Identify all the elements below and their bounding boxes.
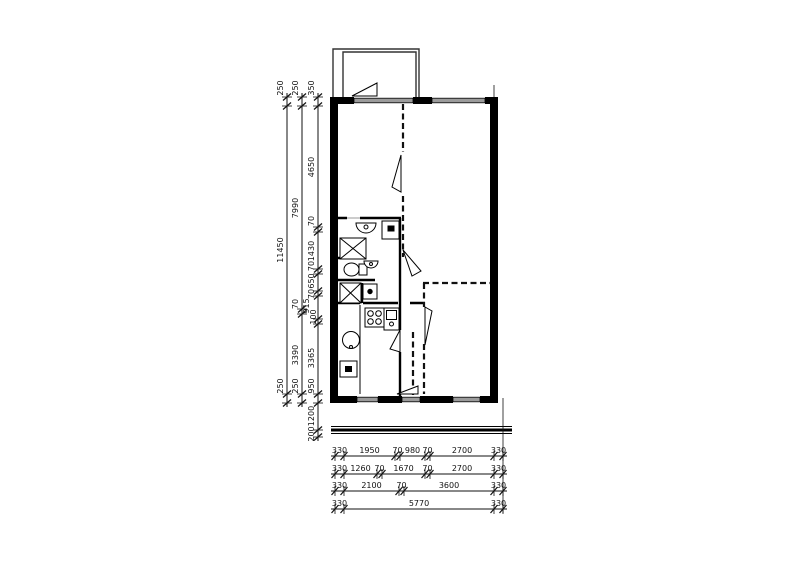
dim-label: 5770 [409,499,429,508]
balcony-door [352,83,377,96]
dim-label: 70 [291,299,300,309]
appliance-dot [346,367,352,372]
windows [354,98,485,402]
dim-label: 1950 [359,446,379,455]
dim-label: 70 [307,216,316,226]
dim-label: 250 [291,378,300,393]
dim-label: 70 [307,289,316,299]
dim-label: 330 [491,481,506,490]
bathroom-fixtures [340,221,399,303]
dim-label: 3390 [291,345,300,365]
window-bottom-3 [453,397,480,402]
stove-burner-2 [376,311,382,317]
dim-label: 200 [307,426,316,441]
stove-icon [365,308,384,327]
dimension-annotations: 2501145025025079907033902503504650701430… [276,80,507,514]
kitchen-sink-tap [390,322,394,326]
window-top-1 [354,98,413,103]
dim-label: 980 [405,446,420,455]
dim-label: 70 [374,464,384,473]
dim-label: 3600 [439,481,459,490]
dim-label: 330 [332,499,347,508]
kitchen-sink-basin [387,311,397,320]
right-wall [490,97,498,403]
dim-label: 330 [332,481,347,490]
floor-plan-canvas: 2501145025025079907033902503504650701430… [0,0,800,566]
bottom-wall-pier-3 [420,396,453,403]
dim-label: 2100 [361,481,381,490]
dim-label: 330 [491,464,506,473]
dim-label: 4650 [307,157,316,177]
window-top-2 [432,98,485,103]
stove-burner-3 [368,319,374,325]
floor-plan-page: 2501145025025079907033902503504650701430… [0,0,800,566]
kitchen-door [390,330,400,352]
dim-label: 250 [291,80,300,95]
left-wall [330,97,338,403]
dim-label: 70 [307,261,316,271]
round-sink-drain [350,346,353,349]
bottom-wall-pier-2 [378,396,402,403]
top-wall-pier-mid [413,97,432,104]
bedroom1-door [392,155,401,192]
dim-label: 70 [422,446,432,455]
dim-label: 1430 [307,241,316,261]
washbasin-tap [364,225,368,229]
dim-label: 250 [276,378,285,393]
hand-basin-tap [370,263,373,266]
dim-label: 330 [332,464,347,473]
toilet-icon [344,263,359,276]
dim-label: 11450 [276,237,285,262]
dim-label: 1200 [307,406,316,426]
dim-label: 330 [332,446,347,455]
dim-label: 3365 [307,348,316,368]
dim-label: 2700 [452,446,472,455]
dim-label: 70 [396,481,406,490]
dim-label: 2700 [452,464,472,473]
top-wall-pier-right [485,97,498,104]
window-bottom-2 [402,397,420,402]
stove-burner-1 [368,311,374,317]
terrace-edge [331,427,512,434]
dim-label: 1260 [350,464,370,473]
dim-label: 70 [422,464,432,473]
dim-label: 650 [307,273,316,288]
bedroom2-door [425,307,432,345]
washing-machine-drum [388,226,394,231]
dim-label: 250 [276,80,285,95]
dim-label: 1670 [393,464,413,473]
dim-label: 70 [392,446,402,455]
boiler-dot [368,289,372,293]
bottom-wall-pier-1 [330,396,357,403]
dim-label: 7990 [291,198,300,218]
hall-living-door [403,250,421,276]
balcony-inner-rail [343,52,416,100]
top-wall-pier-left [330,97,354,104]
dim-label: 330 [491,499,506,508]
bottom-wall-pier-4 [480,396,498,403]
dim-label: 330 [491,446,506,455]
dashed-walls [403,104,490,396]
window-bottom-1 [357,397,378,402]
dim-label: 950 [307,378,316,393]
dim-label: 100 [309,309,318,324]
stove-burner-4 [376,319,382,325]
dim-label: 350 [307,80,316,95]
